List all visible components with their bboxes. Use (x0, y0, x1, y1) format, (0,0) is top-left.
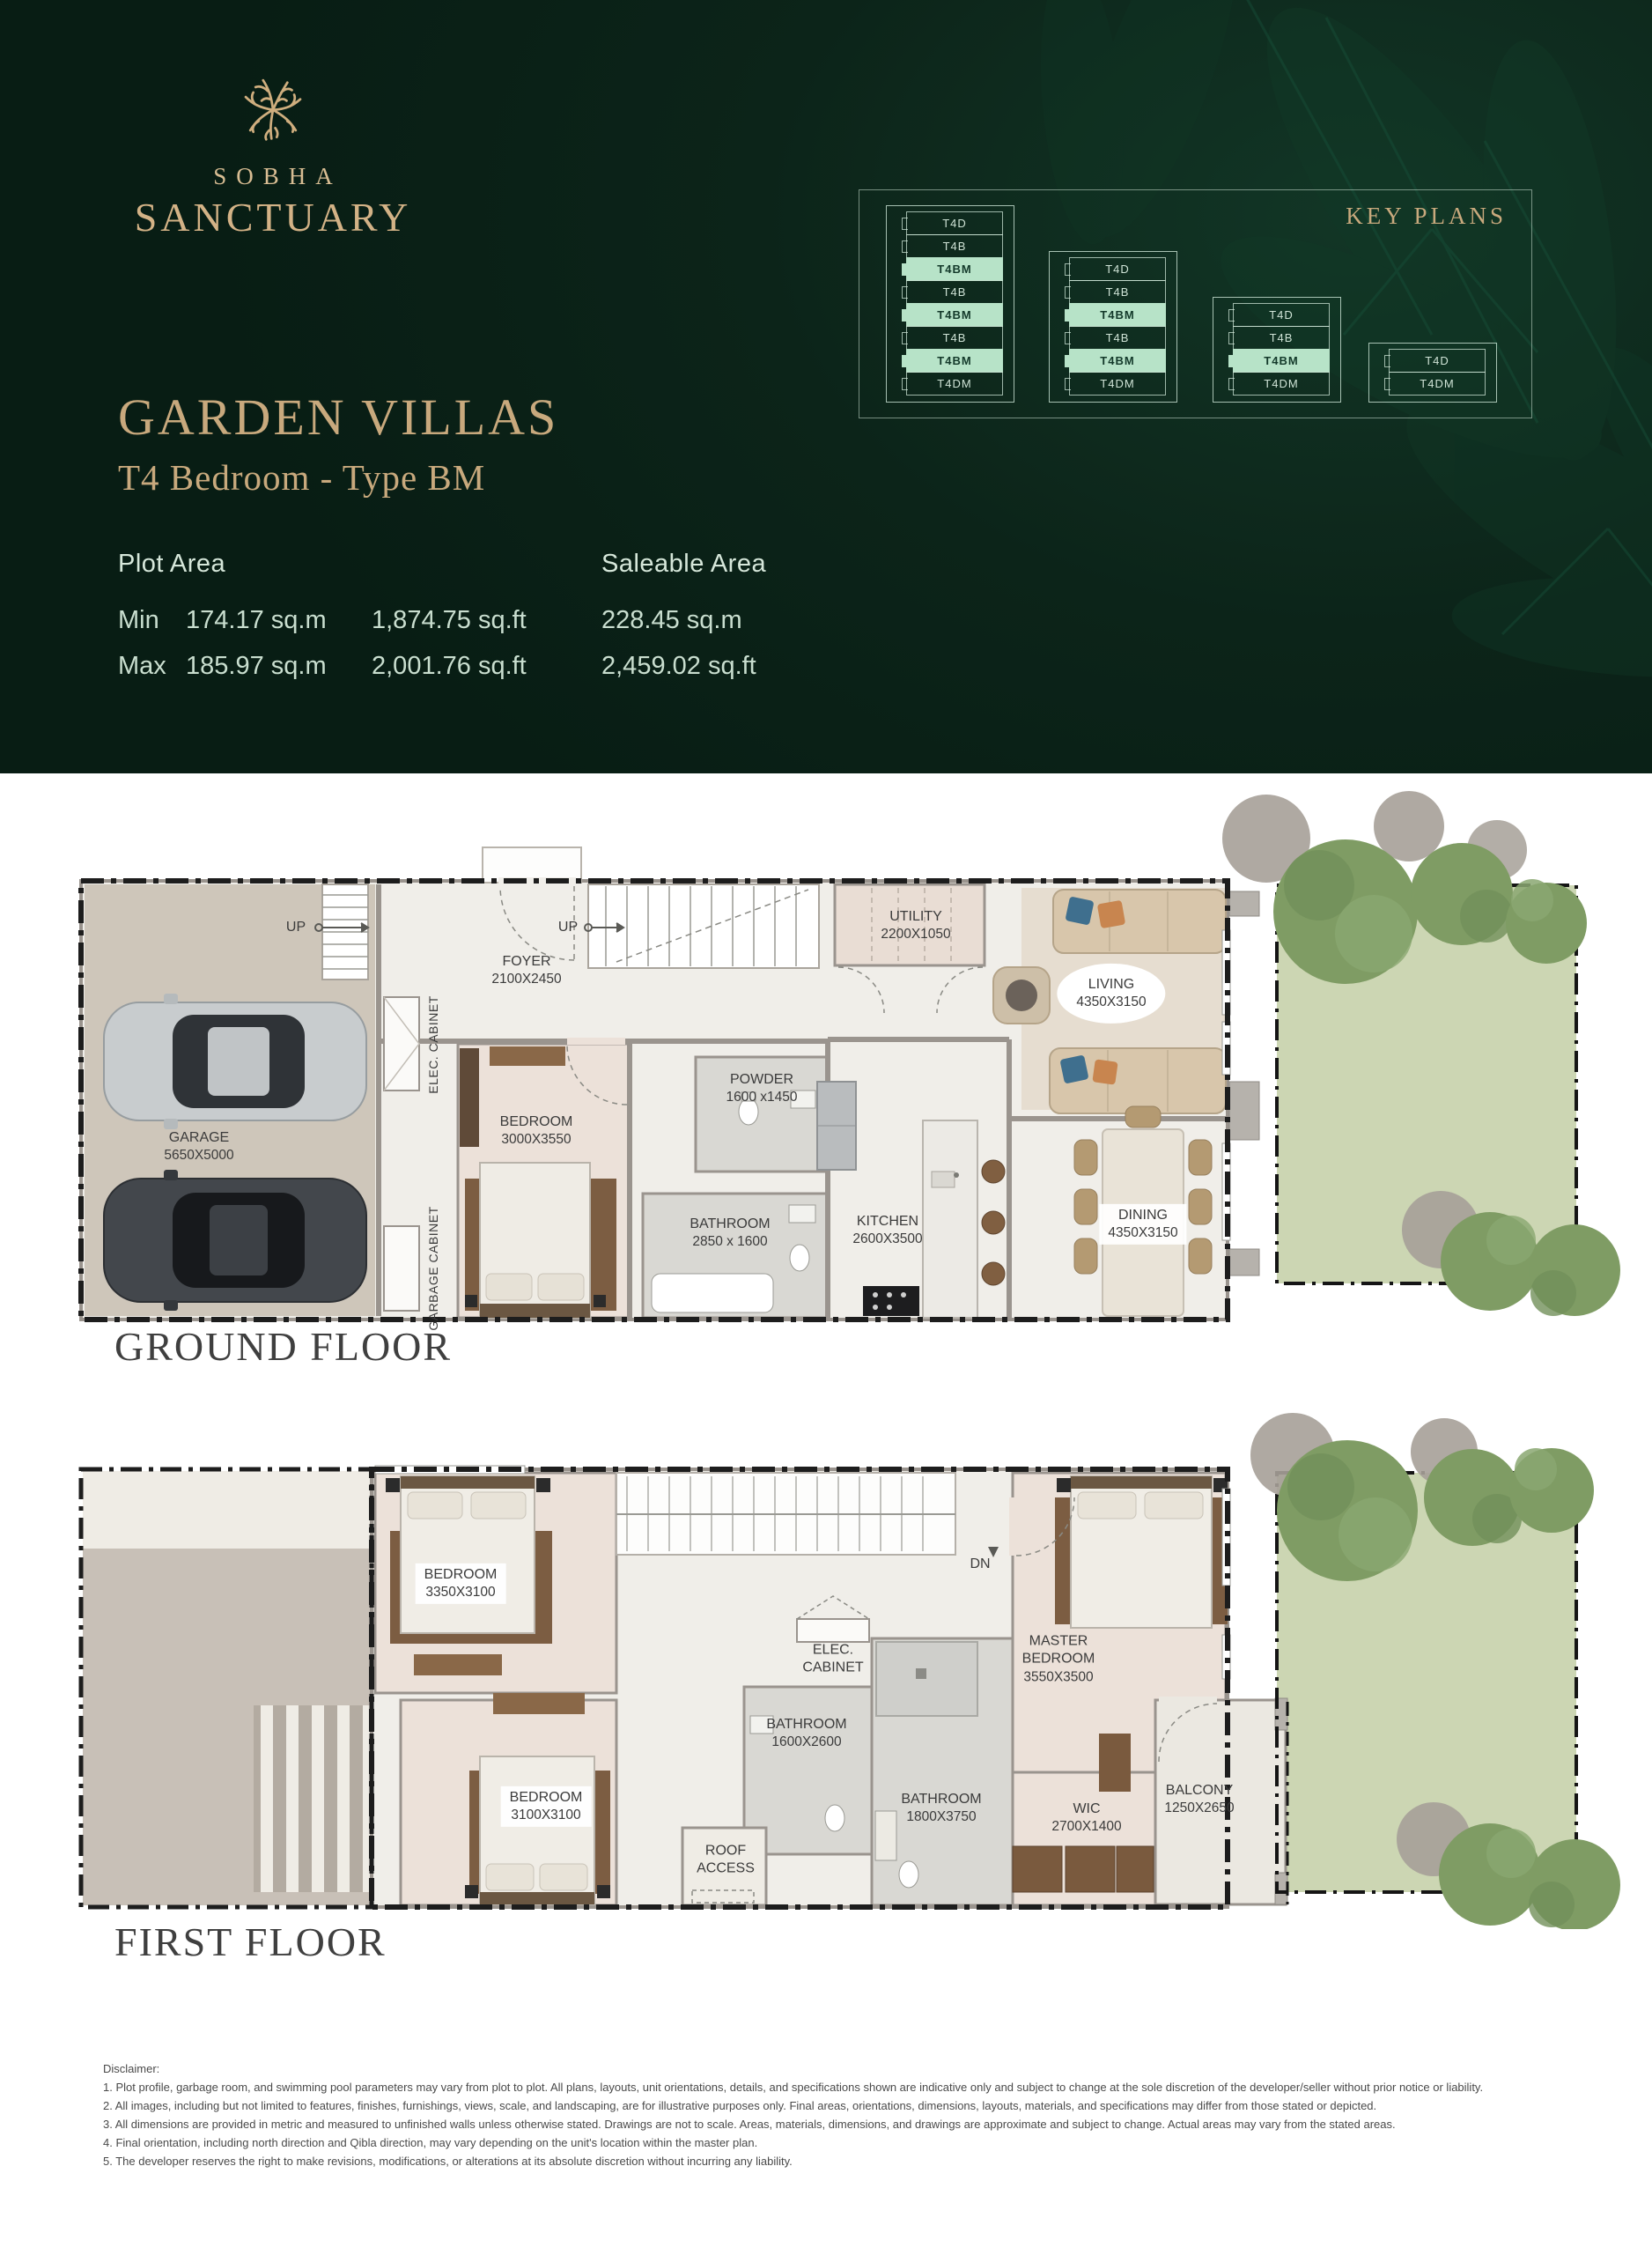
key-plans-title: KEY PLANS (1346, 203, 1507, 230)
master-shower (876, 1642, 977, 1716)
keyplan-unit-notch (1384, 355, 1390, 367)
elec-cabinet (384, 997, 419, 1091)
keyplan-building-2: T4DT4BT4BMT4BT4BMT4DM (1049, 251, 1177, 403)
ff-dresser2 (493, 1693, 585, 1714)
room-label-balcony: BALCONY1250X2650 (1164, 1782, 1234, 1817)
keyplan-unit-notch (902, 218, 908, 230)
plot-area-min-row: Min174.17 sq.m1,874.75 sq.ft (118, 606, 527, 635)
key-plans-panel: KEY PLANS T4DT4BT4BMT4BT4BMT4BT4BMT4DM T… (859, 189, 1532, 418)
room-label-garage: GARAGE5650X5000 (164, 1129, 233, 1164)
keyplan-unit-t4b: T4B (1069, 326, 1166, 350)
keyplan-unit-t4dm: T4DM (1389, 372, 1486, 396)
ff-bed1 (386, 1476, 552, 1644)
page-title: GARDEN VILLAS (118, 388, 558, 447)
brand-subname: SANCTUARY (106, 194, 440, 240)
brochure-page: { "header": { "brand": {"name": "SOBHA",… (0, 0, 1652, 2255)
keyplan-unit-t4b: T4B (906, 234, 1003, 258)
keyplan-building-1: T4DT4BT4BMT4BT4BMT4BT4BMT4DM (886, 205, 1014, 403)
brand-name: SOBHA (106, 163, 440, 190)
ground-stoops (1229, 891, 1259, 1275)
keyplan-unit-notch (1228, 332, 1235, 344)
keyplan-unit-notch (902, 332, 908, 344)
keyplan-unit-t4d: T4D (906, 211, 1003, 235)
shower-drain (916, 1668, 926, 1679)
keyplan-unit-t4bm: T4BM (1069, 303, 1166, 327)
keyplan-unit-notch (902, 378, 908, 390)
room-label-wic: WIC2700X1400 (1051, 1800, 1121, 1836)
master-bed (1055, 1476, 1228, 1628)
keyplan-unit-t4b: T4B (1233, 326, 1330, 350)
brand-logo: SOBHA SANCTUARY (106, 70, 440, 240)
keyplan-unit-notch (902, 286, 908, 299)
page-subtitle: T4 Bedroom - Type BM (118, 456, 485, 499)
hero-header: SOBHA SANCTUARY GARDEN VILLAS T4 Bedroom… (0, 0, 1652, 773)
room-label-ff-bedroom1: BEDROOM3350X3100 (416, 1564, 506, 1604)
plot-max-sqft: 2,001.76 sq.ft (372, 652, 527, 680)
keyplan-building-4: T4DT4DM (1368, 343, 1497, 403)
room-label-living: LIVING4350X3150 (1057, 964, 1165, 1024)
keyplan-unit-t4d: T4D (1389, 349, 1486, 373)
label-roof-access: ROOF ACCESS (686, 1843, 765, 1879)
keyplan-unit-notch (902, 263, 908, 276)
label-ff-elec-cabinet: ELEC. CABINET (793, 1642, 873, 1678)
up-label-foyer: UP (558, 919, 578, 936)
plot-min-sqft: 1,874.75 sq.ft (372, 606, 527, 634)
keyplan-unit-t4bm: T4BM (1069, 349, 1166, 373)
keyplan-unit-notch (1065, 309, 1071, 322)
sobha-tree-icon (235, 70, 311, 146)
keyplan-unit-t4bm: T4BM (906, 257, 1003, 281)
room-label-powder: POWDER1600 x1450 (726, 1071, 797, 1106)
keyplan-unit-notch (1065, 378, 1071, 390)
wic-wardrobes (1013, 1846, 1154, 1892)
ground-floor-heading: GROUND FLOOR (114, 1323, 452, 1370)
room-label-ff-bedroom2: BEDROOM3100X3100 (501, 1786, 592, 1827)
plot-min-sqm: 174.17 sq.m (186, 606, 372, 635)
label-dn: DN (970, 1556, 990, 1573)
keyplan-unit-notch (1065, 263, 1071, 276)
room-label-ff-bathroom2: BATHROOM1800X3750 (901, 1791, 981, 1826)
disclaimer-line-4: 4. Final orientation, including north di… (103, 2133, 1640, 2152)
saleable-area-label: Saleable Area (601, 550, 766, 579)
keyplan-unit-notch (1065, 286, 1071, 299)
garbage-cabinet (384, 1226, 419, 1311)
plot-max-key: Max (118, 652, 186, 681)
keyplan-unit-notch (1228, 378, 1235, 390)
ff-bed2 (465, 1756, 610, 1904)
keyplan-unit-notch (1065, 355, 1071, 367)
keyplan-unit-t4d: T4D (1069, 257, 1166, 281)
disclaimer-line-3: 3. All dimensions are provided in metric… (103, 2115, 1640, 2133)
room-label-kitchen: KITCHEN2600X3500 (852, 1213, 922, 1248)
ground-wardrobe (460, 1048, 479, 1147)
keyplan-unit-notch (1065, 332, 1071, 344)
ff-dresser1 (414, 1654, 502, 1675)
keyplan-unit-t4d: T4D (1233, 303, 1330, 327)
keyplan-unit-notch (1228, 309, 1235, 322)
keyplan-unit-notch (902, 355, 908, 367)
car-dark-icon (104, 1170, 366, 1311)
keyplan-unit-notch (1384, 378, 1390, 390)
room-label-dining: DINING4350X3150 (1099, 1204, 1186, 1245)
master-dresser (1099, 1734, 1131, 1792)
saleable-sqm: 228.45 sq.m (601, 606, 742, 635)
ground-dresser (490, 1046, 565, 1066)
first-floor-heading: FIRST FLOOR (114, 1919, 387, 1965)
plot-area-label: Plot Area (118, 550, 225, 579)
room-label-ff-bathroom1: BATHROOM1600X2600 (766, 1716, 846, 1751)
keyplan-unit-t4bm: T4BM (906, 303, 1003, 327)
plot-max-sqm: 185.97 sq.m (186, 652, 372, 681)
ground-bed (465, 1163, 616, 1318)
balcony-door-gap (1159, 1697, 1217, 1704)
keyplan-unit-t4bm: T4BM (906, 349, 1003, 373)
label-elec-cabinet: ELEC. CABINET (426, 995, 442, 1094)
room-label-utility: UTILITY2200X1050 (881, 908, 950, 943)
ff-stairwell (616, 1473, 999, 1557)
room-label-ground-bathroom: BATHROOM2850 x 1600 (690, 1216, 770, 1251)
keyplan-building-3: T4DT4BT4BMT4DM (1213, 297, 1341, 403)
keyplan-unit-t4dm: T4DM (906, 372, 1003, 396)
keyplan-unit-t4b: T4B (1069, 280, 1166, 304)
car-silver-icon (104, 994, 366, 1129)
disclaimer-block: Disclaimer: 1. Plot profile, garbage roo… (103, 2059, 1640, 2170)
plot-area-max-row: Max185.97 sq.m2,001.76 sq.ft (118, 652, 527, 681)
room-label-ground-bedroom: BEDROOM3000X3550 (500, 1113, 573, 1149)
disclaimer-line-1: 1. Plot profile, garbage room, and swimm… (103, 2078, 1640, 2096)
disclaimer-title: Disclaimer: (103, 2059, 1640, 2078)
room-label-foyer: FOYER2100X2450 (491, 953, 561, 988)
keyplan-unit-t4bm: T4BM (1233, 349, 1330, 373)
plot-min-key: Min (118, 606, 186, 635)
keyplan-unit-t4dm: T4DM (1233, 372, 1330, 396)
label-garbage-cabinet: GARBAGE CABINET (426, 1206, 442, 1330)
saleable-sqft: 2,459.02 sq.ft (601, 652, 756, 681)
keyplan-unit-notch (902, 309, 908, 322)
ground-floor-plan (0, 775, 1652, 1339)
keyplan-unit-t4b: T4B (906, 280, 1003, 304)
keyplan-unit-t4b: T4B (906, 326, 1003, 350)
master-door-gap (1009, 1497, 1016, 1556)
disclaimer-line-2: 2. All images, including but not limited… (103, 2096, 1640, 2115)
bedroom-door-gap (567, 1038, 625, 1045)
room-label-master-bedroom: MASTER BEDROOM3550X3500 (1002, 1633, 1115, 1687)
up-label-garage: UP (286, 919, 306, 936)
keyplan-unit-notch (902, 240, 908, 253)
disclaimer-line-5: 5. The developer reserves the right to m… (103, 2152, 1640, 2170)
keyplan-unit-t4dm: T4DM (1069, 372, 1166, 396)
keyplan-unit-notch (1228, 355, 1235, 367)
